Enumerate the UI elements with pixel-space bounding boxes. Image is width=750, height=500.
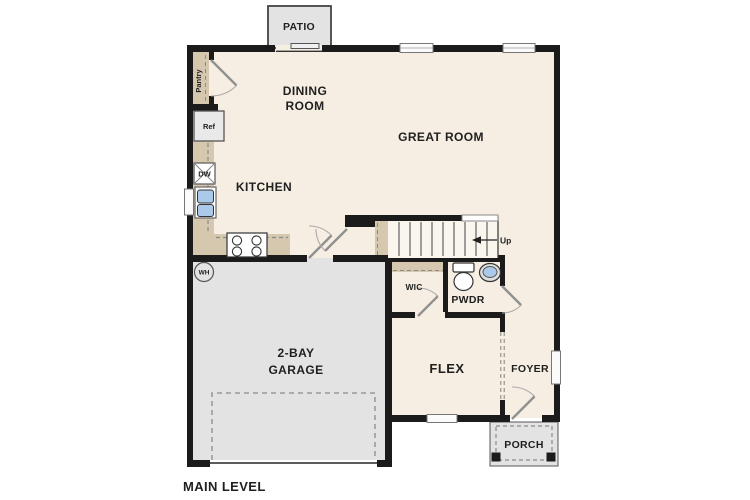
wall-segment xyxy=(209,52,214,60)
wall-segment xyxy=(187,104,218,111)
wall-segment xyxy=(500,400,505,415)
porch-label: PORCH xyxy=(504,439,543,451)
wall-segment xyxy=(443,262,448,312)
kitchen-label: KITCHEN xyxy=(236,180,292,194)
wall-segment xyxy=(345,221,375,227)
garage-label-line2: GARAGE xyxy=(268,363,323,377)
garage-label-line1: 2-BAY xyxy=(278,346,315,360)
stair-newel xyxy=(375,221,388,257)
wall-segment xyxy=(542,415,560,422)
pwdr-sink-basin xyxy=(483,267,497,278)
ref-label: Ref xyxy=(203,122,216,131)
dw-label: DW xyxy=(198,170,211,179)
window-foyer xyxy=(552,351,561,384)
patio-label: PATIO xyxy=(283,21,315,33)
wall-segment xyxy=(187,215,193,467)
garage-door-line xyxy=(210,462,377,464)
toilet-bowl xyxy=(454,273,473,291)
wall-segment xyxy=(187,45,193,189)
burner xyxy=(252,236,261,245)
stair-railing xyxy=(462,215,498,221)
toilet-tank xyxy=(453,263,474,272)
garage-floor xyxy=(193,258,389,464)
window-flex xyxy=(427,415,457,423)
wall-segment xyxy=(209,96,214,104)
sliding-door-panel xyxy=(291,44,319,49)
burner xyxy=(232,247,241,256)
flex-label: FLEX xyxy=(429,361,464,376)
stairs xyxy=(388,215,498,258)
dining-room-label-line1: DINING xyxy=(283,84,327,98)
wall-segment xyxy=(500,312,505,332)
wall-segment xyxy=(187,460,210,467)
wic-label: WIC xyxy=(405,282,422,292)
up-label: Up xyxy=(500,236,511,246)
porch-post-right xyxy=(547,453,556,462)
wall-segment xyxy=(385,258,392,467)
pwdr-label: PWDR xyxy=(451,294,484,306)
dining-room-label-line2: ROOM xyxy=(286,99,325,113)
patio-door-track xyxy=(276,51,322,52)
great-room-label: GREAT ROOM xyxy=(398,130,484,144)
burner xyxy=(252,247,261,256)
foyer-label: FOYER xyxy=(511,363,549,375)
wall-segment xyxy=(445,312,505,318)
burner xyxy=(232,236,241,245)
window-kitchen-sink xyxy=(185,189,194,215)
floorplan-drawing: PATIO DINING ROOM GREAT ROOM KITCHEN 2-B… xyxy=(0,0,750,500)
wall-segment xyxy=(433,45,503,52)
sink-basin-bottom xyxy=(198,205,214,217)
sink-basin-top xyxy=(198,190,214,203)
plan-title: MAIN LEVEL xyxy=(183,479,266,494)
porch-post-left xyxy=(492,453,501,462)
wall-segment xyxy=(554,45,560,352)
wh-label: WH xyxy=(199,270,210,277)
wall-segment xyxy=(322,45,400,52)
wall-segment xyxy=(392,312,415,318)
pantry-label: Pantry xyxy=(194,69,203,93)
floorplan-page: PATIO DINING ROOM GREAT ROOM KITCHEN 2-B… xyxy=(0,0,750,500)
wall-segment xyxy=(187,45,275,52)
wall-segment xyxy=(345,215,462,221)
wall-segment xyxy=(333,255,392,262)
